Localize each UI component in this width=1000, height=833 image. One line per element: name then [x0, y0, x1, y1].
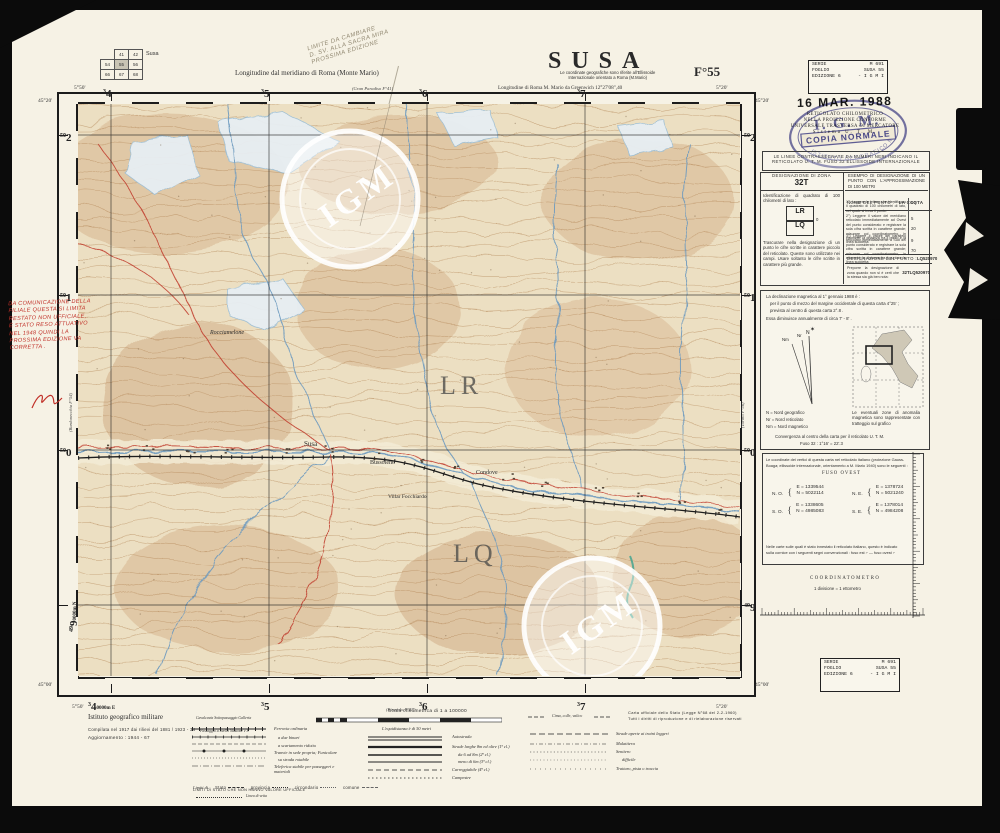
corner-lat-ne: 45°20' — [755, 98, 769, 104]
northing-label-right: 502 — [744, 128, 756, 146]
convergence-1: Convergenza al centro della carta per il… — [775, 434, 884, 439]
corner-lon-nw: 5°50' — [74, 85, 85, 91]
north-arrows-diagram: N Nr Nm ✶ — [772, 326, 842, 408]
grid-tick — [111, 684, 112, 693]
grid-tick — [427, 684, 428, 693]
official-note-2: Tutti i diritti di riproduzione e di rie… — [628, 716, 742, 721]
declination-line2: per il punto di mezzo del margine occide… — [770, 301, 899, 306]
red-signature — [28, 388, 68, 414]
road-item-2: da 6 ad 8m (2ª cl.) — [458, 752, 490, 757]
north-legend-3: Nm = Nord magnetico — [766, 424, 808, 429]
igm-watermark-stamp: IGM — [282, 131, 418, 267]
compiled-note: Compilata nel 1917 dai rilievi del 1881 … — [88, 727, 195, 732]
northing-label-right: 500 — [744, 443, 756, 461]
town-label-villar: Villar Focchiardo — [388, 494, 427, 500]
path-item-4: Tratturo, pista o traccia — [616, 766, 658, 771]
road-item-0: Autostrada — [452, 734, 472, 739]
limit-symbol — [320, 786, 336, 788]
example-title-cell: ESEMPIO DI DESIGNAZIONE DI UN PUNTO CON … — [845, 172, 928, 191]
step1-value: LQ — [911, 200, 917, 205]
peak-label-rocciamelone: Rocciamelone — [209, 330, 244, 336]
coords-intro-1: Le coordinate dei vertici di questa cart… — [766, 457, 904, 462]
coord-so: S. O. { E = 1338605 N = 4985083 — [772, 500, 824, 518]
svg-text:Nm: Nm — [782, 337, 789, 342]
anomaly-note: Le eventuali zone di anomalia magnetica … — [852, 410, 920, 426]
series-box-bottom: SERIEM 691 FOGLIOSUSA 55 EDIZIONE 6- I G… — [820, 658, 900, 692]
topographic-map-body: LR LQ Susa Bussoleno Condove Villar Focc… — [78, 104, 740, 676]
scale-bar — [316, 716, 502, 724]
square-id-note: Identificazione di quadrato di 100 chilo… — [763, 193, 840, 204]
corner-lat-nw: 45°20' — [38, 98, 52, 104]
svg-text:Nr: Nr — [797, 333, 802, 338]
minute-band-right — [740, 104, 742, 676]
northing-label-left: 502 — [60, 128, 72, 146]
institute-name: Istituto geografico militare — [88, 713, 163, 721]
skip-note: Trascurare nella designazione di un punt… — [763, 240, 840, 267]
step2-value2: 20 — [911, 226, 916, 231]
easting-label-top: 35 — [261, 84, 270, 102]
corner-lon-ne: 5°20' — [716, 85, 727, 91]
declination-line3: prevista al centro di questa carta 2°.8 … — [770, 308, 843, 313]
step3-value2: 70 — [911, 248, 916, 253]
zone-cell: DESIGNAZIONE DI ZONA 32T — [760, 172, 844, 191]
convergence-2: Fuso 32 : 1°16' = 22'.3 — [800, 441, 843, 446]
north-legend-1: N = Nord geografico — [766, 410, 805, 415]
step1-text: 1°) Leggere le lettere che identificano … — [846, 200, 906, 213]
backdrop-left — [0, 0, 12, 833]
panel-divider — [843, 172, 844, 284]
northing-label-right: 499 — [744, 598, 756, 616]
grid-tick — [269, 684, 270, 693]
pass-label: Cima, colle, valico — [552, 713, 582, 718]
rail-item-2: a scartamento ridotto — [278, 743, 316, 748]
equidistance-note: L'equidistanza è di 50 metri — [382, 726, 431, 731]
declination-line1: La declinazione magnetica al 1° gennaio … — [766, 294, 860, 299]
ridge-line-label: Linea di vetta — [246, 794, 267, 798]
path-item-3: difficile — [622, 757, 635, 762]
coordinatometro-sub: 1 divisione = 1 ettometro — [814, 586, 861, 591]
northing-label-right: 501 — [744, 288, 756, 306]
square-letters-lr: LR — [440, 371, 483, 400]
coordinatometro-title: COORDINATOMETRO — [810, 576, 880, 582]
official-note-1: Carta ufficiale dello Stato (Legge N°68 … — [628, 710, 737, 715]
road-item-5: Campestre — [452, 775, 471, 780]
series-box-top: SERIEM 691 FOGLIOSUSA 55 EDIZIONE 6- I G… — [808, 60, 888, 94]
svg-text:✶: ✶ — [810, 326, 815, 333]
prefix-row: Preporre la designazione di zona quando … — [845, 263, 932, 284]
red-handwritten-note: DA COMUNICAZIONE DELLA FILIALE QUESTA SI… — [8, 299, 80, 353]
adjacent-sheet-north: (Gran Paradiso F°41) — [352, 86, 393, 91]
square-letters-lq: LQ — [453, 539, 498, 568]
coordinatometer-ruler-vertical — [910, 452, 924, 618]
road-item-3: meno di 6m (3ª cl.) — [458, 759, 491, 764]
coord-ne: N. E. { E = 1378724 N = 5021240 — [852, 482, 904, 500]
adjacent-sheet-west: (Bardonecchia F°54) — [68, 393, 73, 432]
north-legend-2: Nr = Nord reticolato — [766, 417, 803, 422]
sheet-number: F°55 — [694, 64, 720, 80]
square-tick-label: 0 — [816, 217, 818, 222]
ridge-line-symbol — [196, 797, 242, 798]
path-item-2: Sentiero — [616, 749, 630, 754]
backdrop-top — [0, 0, 1000, 10]
ellipsoid-note: Le coordinate geografiche sono riferite … — [560, 70, 655, 81]
corner-lat-sw: 45°00' — [38, 682, 52, 688]
coord-se: S. E. { E = 1378014 N = 4984208 — [852, 500, 903, 518]
index-grid-label: Susa — [146, 51, 159, 57]
easting-label-bottom: 35 — [261, 697, 270, 715]
easting-label-top: 37 — [577, 84, 586, 102]
scanned-map-sheet: 4142 545556 666768 Susa Longitudine dal … — [0, 0, 1000, 833]
greenwich-note: Longitudine di Roma M. Mario da Greenwic… — [498, 85, 622, 91]
coords-note-1: Nelle carte sulle quali è stato innestat… — [766, 544, 897, 549]
road-item-4: Carreggiabile (4ª cl.) — [452, 767, 490, 772]
step2-value1: 5 — [911, 216, 913, 221]
rail-item-3: Tranvie in sede propria; Funicolare — [274, 750, 337, 755]
italy-index-map — [852, 326, 924, 408]
declination-line4: Essa diminuisce annualmente di circa 7' … — [766, 316, 852, 321]
adjacent-sheet-east: (Torino F°56) — [740, 402, 745, 428]
town-label-condove: Condove — [476, 470, 498, 476]
path-item-1: Mulattiera — [616, 741, 635, 746]
minute-band-bottom — [78, 677, 740, 679]
sheet-index-grid: 4142 545556 666768 — [100, 49, 143, 80]
rail-item-5: Teleferica stabile per passeggeri e mate… — [274, 764, 348, 774]
designation-row: DESIGNAZIONE DEL PUNTO : LQ520970 — [845, 254, 932, 262]
rail-item-4: su strada rotabile — [278, 757, 309, 762]
grid-note-box: LE LINEE CONTRASSEGNATE DA NUMERI NERI I… — [762, 151, 930, 171]
rail-sublabel-2: Passaggio a livello Stazione e F. — [200, 729, 249, 733]
step-values-line — [908, 198, 909, 254]
path-item-0: Strade aperte ai traini leggeri — [616, 731, 669, 736]
square-lq-box: LQ — [786, 220, 814, 236]
step3-value1: 9 — [911, 238, 913, 243]
road-item-1: Strade larghe 8m ed oltre (1ª cl.) — [452, 744, 510, 749]
easting-label-top: 36 — [419, 84, 428, 102]
easting-label-top: 34 — [103, 84, 112, 102]
state-limits-note: LIMITI DI STATO CHE NON HANNO VALORE UFF… — [193, 788, 305, 792]
grid-tick — [585, 684, 586, 693]
rail-sublabel-1: Cavalcavia Sottopassaggio Galleria — [196, 716, 251, 720]
limit-symbol — [362, 786, 378, 788]
fuso-title: FUSO OVEST — [822, 471, 861, 477]
town-label-bussoleno: Bussoleno — [370, 460, 395, 466]
road-legend-symbols — [366, 734, 446, 784]
rail-item-0: Ferrovia ordinaria — [274, 726, 307, 731]
northing-label-left: 500 — [60, 443, 72, 461]
scale-title: Scala chilometrica di 1 a 100000 — [388, 709, 467, 714]
coords-note-2: sulla cornice con i seguenti segni conve… — [766, 550, 895, 555]
igm-watermark-stamp: IGM — [524, 558, 660, 676]
edge-notch — [956, 108, 986, 170]
coords-intro-2: Boaga; ellissoide internazionale, orient… — [766, 463, 908, 468]
corner-lat-se: 45°00' — [755, 682, 769, 688]
corner-lon-sw: 5°50' — [72, 704, 83, 710]
coord-no: N. O. { E = 1339544 N = 5022114 — [772, 482, 824, 500]
torn-edge-shape — [940, 180, 1000, 325]
backdrop-bottom — [0, 806, 1000, 833]
update-note: Aggiornamento : 1944 - 67 — [88, 735, 150, 740]
path-legend-symbols — [528, 712, 612, 774]
town-label-susa: Susa — [304, 440, 318, 448]
coordinatometer-ruler-horizontal — [760, 604, 925, 618]
meridian-note: Longitudine dal meridiano di Roma (Monte… — [235, 69, 379, 77]
rail-item-1: a due binari — [278, 735, 299, 740]
